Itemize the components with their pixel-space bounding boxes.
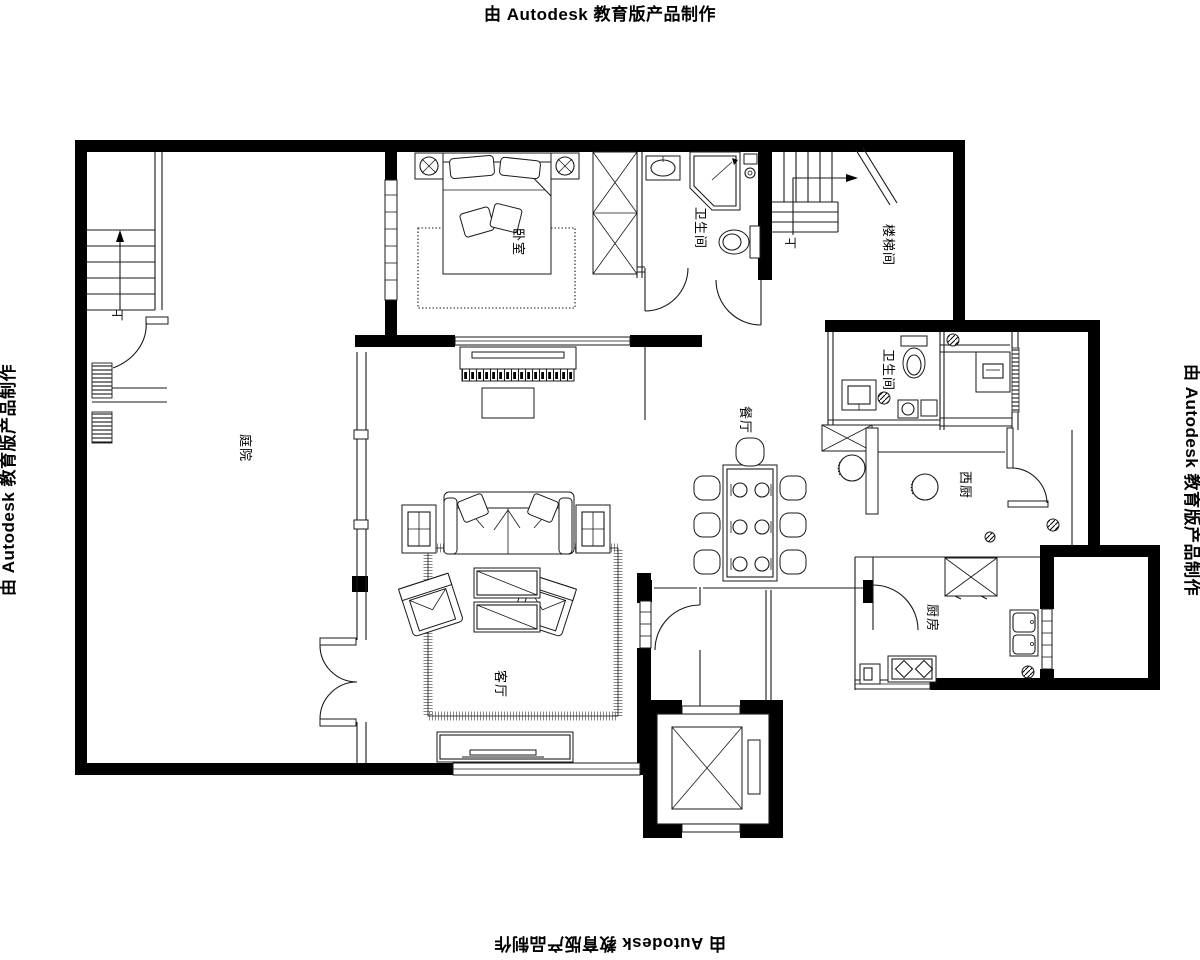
living-right-window	[640, 601, 651, 648]
bathroom-mid-fixtures	[842, 334, 1010, 418]
sofa	[444, 492, 574, 554]
kitchen-right-window	[1042, 609, 1052, 669]
shower	[690, 152, 740, 210]
nightstand-left	[415, 153, 443, 179]
stair-room-door	[716, 280, 761, 325]
bedroom-left-window	[385, 180, 397, 300]
dining-furniture	[694, 438, 806, 581]
living-french-doors	[320, 638, 357, 726]
watermark-top: 由 Autodesk 教育版产品制作	[484, 4, 716, 24]
toilet-top	[719, 226, 760, 258]
sink-mid	[842, 380, 876, 410]
stairs-up-right-label: 上	[784, 237, 798, 249]
stairwell-stairs: 上	[772, 148, 897, 249]
room-label-bedroom: 卧室	[511, 228, 526, 256]
washer-small	[898, 400, 937, 418]
stairs-up-left-label: 上	[111, 309, 125, 321]
toilet-mid	[901, 336, 927, 378]
living-left-glass-wall	[354, 352, 368, 763]
room-label-stairwell: 楼梯间	[881, 224, 896, 266]
wardrobe	[593, 152, 637, 274]
bar-stool	[838, 455, 865, 481]
room-labels: 庭院 卧室 卫生间 楼梯间 卫生间 餐厅 西厨 厨房 客厅	[238, 207, 973, 698]
outdoor-stairs: 上	[87, 230, 167, 443]
washing-machine	[976, 352, 1010, 392]
kitchen-door	[873, 585, 918, 630]
kitchen-furniture	[860, 558, 1038, 684]
watermark-right: 由 Autodesk 教育版产品制作	[1182, 364, 1200, 596]
tv-cabinet	[437, 732, 573, 762]
room-label-west-kitchen: 西厨	[958, 471, 973, 499]
watermark-bottom: 由 Autodesk 教育版产品制作	[494, 934, 726, 954]
west-kitchen-furniture	[822, 425, 1059, 542]
living-bottom-window	[453, 763, 640, 775]
room-label-bathroom-mid: 卫生间	[881, 349, 896, 391]
armchair-left	[399, 573, 464, 637]
room-label-courtyard: 庭院	[238, 434, 253, 462]
side-table-right	[576, 505, 610, 553]
living-furniture	[399, 347, 618, 762]
bathroom-top-door	[645, 268, 688, 311]
stove	[888, 656, 936, 682]
kitchen-sink	[1010, 610, 1038, 656]
elevator-car	[672, 727, 760, 809]
side-table-left	[402, 505, 436, 553]
bar-stool	[911, 474, 938, 500]
floor-plan-drawing: 上 上	[0, 0, 1200, 960]
room-label-dining: 餐厅	[738, 406, 753, 434]
elevator	[643, 700, 783, 838]
sink-top	[646, 156, 680, 180]
piano	[460, 347, 576, 418]
courtyard-entry-door	[113, 317, 168, 368]
refrigerator	[945, 558, 997, 599]
watermark-left: 由 Autodesk 教育版产品制作	[0, 364, 18, 596]
nightstand-right	[551, 153, 579, 179]
hallway-left-door	[655, 605, 700, 650]
living-top-window	[455, 337, 630, 345]
floor-plan-page: 上 上	[0, 0, 1200, 960]
room-label-kitchen: 厨房	[925, 604, 940, 632]
bed	[443, 153, 551, 274]
room-label-bathroom-top: 卫生间	[693, 207, 708, 249]
west-kitchen-door	[1007, 428, 1048, 507]
room-label-living: 客厅	[493, 670, 508, 698]
